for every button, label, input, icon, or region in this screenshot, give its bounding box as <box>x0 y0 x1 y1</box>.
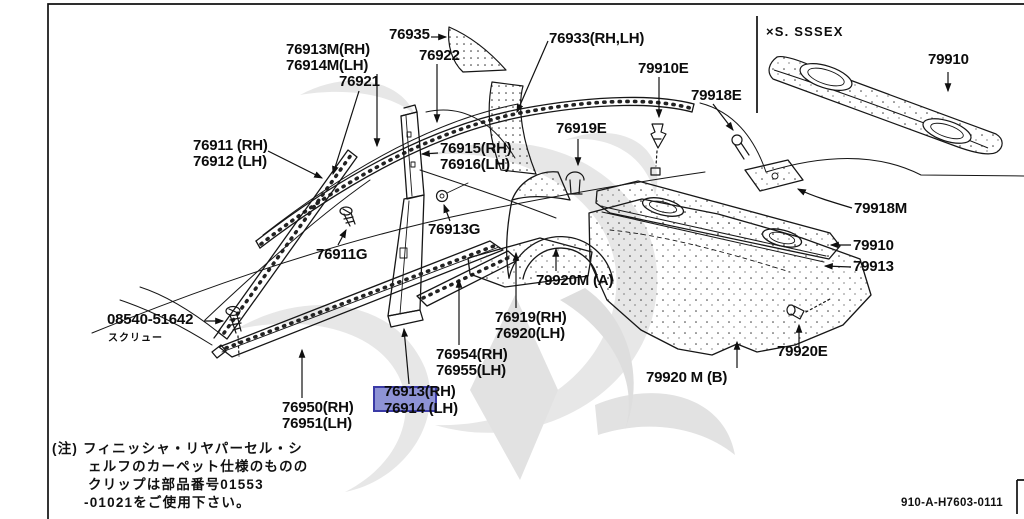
selected-part-suffix: (RH) <box>425 383 456 400</box>
footnote-line-1: (注) フィニッシャ・リヤパーセル・シ <box>52 440 303 458</box>
part-label-76922[interactable]: 76922 <box>419 48 460 64</box>
part-label-79920m-b[interactable]: 79920 M (B) <box>646 370 727 386</box>
part-label-76935[interactable]: 76935 <box>389 27 430 43</box>
part-label-76913m-76914m[interactable]: 76913M(RH) 76914M(LH) <box>286 42 370 74</box>
part-label-76921[interactable]: 76921 <box>339 74 380 90</box>
part-label-79910[interactable]: 79910 <box>853 238 894 254</box>
part-label-79910e[interactable]: 79910E <box>638 61 689 77</box>
footnote-line-3: クリップは部品番号01553 <box>88 476 264 494</box>
part-label-76911g[interactable]: 76911G <box>316 247 367 263</box>
part-label-08540-51642[interactable]: 08540-51642 <box>107 312 193 328</box>
inset-parcel-shelf-drawing <box>769 57 1002 154</box>
part-label-76913-76914[interactable]: 76913(RH) 76914 (LH) <box>373 384 458 417</box>
part-label-76911-76912[interactable]: 76911 (RH) 76912 (LH) <box>193 138 268 170</box>
part-label-76919e[interactable]: 76919E <box>556 121 607 137</box>
inset-part-label-79910[interactable]: 79910 <box>928 52 969 68</box>
part-label-76915-76916[interactable]: 76915(RH) 76916(LH) <box>440 141 512 173</box>
screw-caption: スクリュー <box>108 331 163 347</box>
part-label-79920e[interactable]: 79920E <box>777 344 828 360</box>
part-label-79920m-a[interactable]: 79920M (A) <box>536 273 613 289</box>
part-label-76954-76955[interactable]: 76954(RH) 76955(LH) <box>436 347 508 379</box>
figure-reference-code: 910-A-H7603-0111 <box>901 497 1003 509</box>
selected-part-line[interactable]: 76913(RH) <box>373 384 458 400</box>
footnote-line-2: ェルフのカーペット仕様のものの <box>88 458 309 476</box>
footnote-line-4: -01021をご使用下さい。 <box>84 494 251 512</box>
part-label-79918e[interactable]: 79918E <box>691 88 742 104</box>
part-label-79913[interactable]: 79913 <box>853 259 894 275</box>
inset-variant-label: ×S. SSSEX <box>766 24 844 40</box>
parts-diagram-page: 76935 76922 76933(RH,LH) 76913M(RH) 7691… <box>0 0 1024 519</box>
part-label-76919-76920[interactable]: 76919(RH) 76920(LH) <box>495 310 567 342</box>
part-label-76913g[interactable]: 76913G <box>428 222 480 238</box>
part-label-76933[interactable]: 76933(RH,LH) <box>549 31 644 47</box>
part-label-76950-76951[interactable]: 76950(RH) 76951(LH) <box>282 400 354 432</box>
part-label-79918m[interactable]: 79918M <box>854 201 907 217</box>
pair-part-line[interactable]: 76914 (LH) <box>373 401 458 417</box>
selected-part-number[interactable]: 76913 <box>384 383 425 400</box>
